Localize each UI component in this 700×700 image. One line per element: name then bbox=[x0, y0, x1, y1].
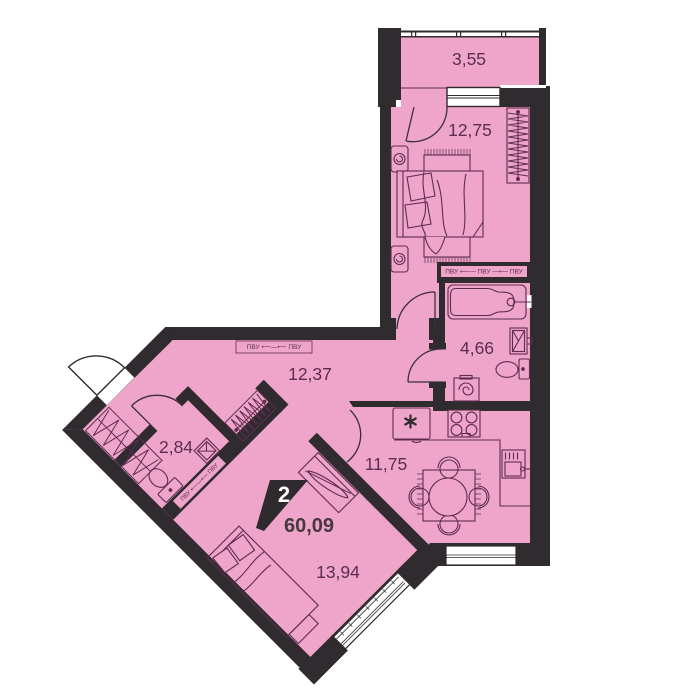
svg-text:11,75: 11,75 bbox=[365, 454, 408, 474]
svg-text:2: 2 bbox=[278, 482, 290, 507]
svg-text:4,66: 4,66 bbox=[460, 338, 494, 358]
svg-text:12,37: 12,37 bbox=[288, 364, 332, 384]
svg-text:3,55: 3,55 bbox=[452, 49, 486, 69]
svg-text:12,75: 12,75 bbox=[448, 120, 492, 140]
svg-text:60,09: 60,09 bbox=[284, 515, 334, 537]
svg-text:13,94: 13,94 bbox=[316, 562, 360, 582]
svg-text:2,84: 2,84 bbox=[159, 437, 193, 457]
svg-text:ПВУ ⟵—⟵ ПВУ: ПВУ ⟵—⟵ ПВУ bbox=[247, 344, 302, 351]
svg-text:ПВУ ⟵— ПВУ —⟵ ПВУ: ПВУ ⟵— ПВУ —⟵ ПВУ bbox=[445, 269, 523, 276]
